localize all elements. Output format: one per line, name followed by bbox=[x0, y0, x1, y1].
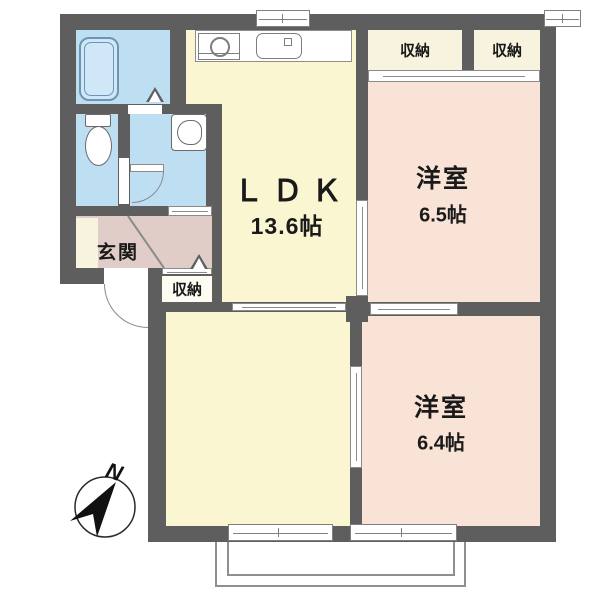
ldk-lower-floor bbox=[166, 312, 350, 528]
kitchen-sink-icon bbox=[256, 33, 302, 59]
stove-icon bbox=[198, 33, 240, 60]
bath-door-opening bbox=[128, 105, 162, 114]
ldk-balcony-window bbox=[228, 524, 333, 541]
balcony-inner bbox=[227, 542, 455, 576]
ldk-size-label: 13.6帖 bbox=[251, 207, 324, 241]
wall bbox=[170, 30, 186, 106]
ldk-western1-sliding-door bbox=[356, 200, 368, 296]
compass-icon: N bbox=[58, 448, 158, 553]
kitchen-window bbox=[256, 10, 310, 27]
ldk-partition-sliding-door bbox=[232, 303, 346, 311]
compass-north-label: N bbox=[103, 457, 127, 486]
wall bbox=[540, 14, 556, 542]
entrance-closet-label: 収納 bbox=[172, 279, 202, 300]
wall bbox=[60, 14, 76, 284]
closet-top-right-label: 収納 bbox=[492, 40, 522, 61]
entrance-label: 玄関 bbox=[97, 238, 139, 265]
folding-door-mark bbox=[190, 254, 208, 269]
wall bbox=[206, 104, 222, 216]
ldk-western2-sliding-door bbox=[350, 366, 362, 468]
small-top-right-window bbox=[544, 10, 581, 27]
toilet-door-opening bbox=[119, 158, 129, 204]
western-room-2-label: 洋室 bbox=[414, 388, 468, 424]
western-room-2-size: 6.4帖 bbox=[417, 427, 465, 456]
closet-top-left-label: 収納 bbox=[400, 40, 430, 61]
toilet-bowl-icon bbox=[85, 126, 112, 166]
western1-western2-sliding-door bbox=[370, 303, 458, 315]
closet-sliding-doors bbox=[368, 70, 540, 82]
western-room-1-size: 6.5帖 bbox=[419, 199, 467, 228]
entrance-door-swing-arc bbox=[104, 284, 148, 328]
western2-balcony-window bbox=[350, 524, 457, 541]
bathtub-icon bbox=[79, 37, 119, 101]
ldk-label: ＬＤＫ bbox=[234, 166, 351, 210]
floor-plan: N ＬＤＫ 13.6帖 洋室 6.5帖 洋室 6.4帖 玄関 収納 収納 収納 bbox=[0, 0, 600, 600]
folding-door-mark bbox=[146, 87, 164, 102]
western-room-1-label: 洋室 bbox=[416, 159, 470, 195]
wall bbox=[462, 30, 474, 70]
washbasin-icon bbox=[171, 114, 207, 151]
